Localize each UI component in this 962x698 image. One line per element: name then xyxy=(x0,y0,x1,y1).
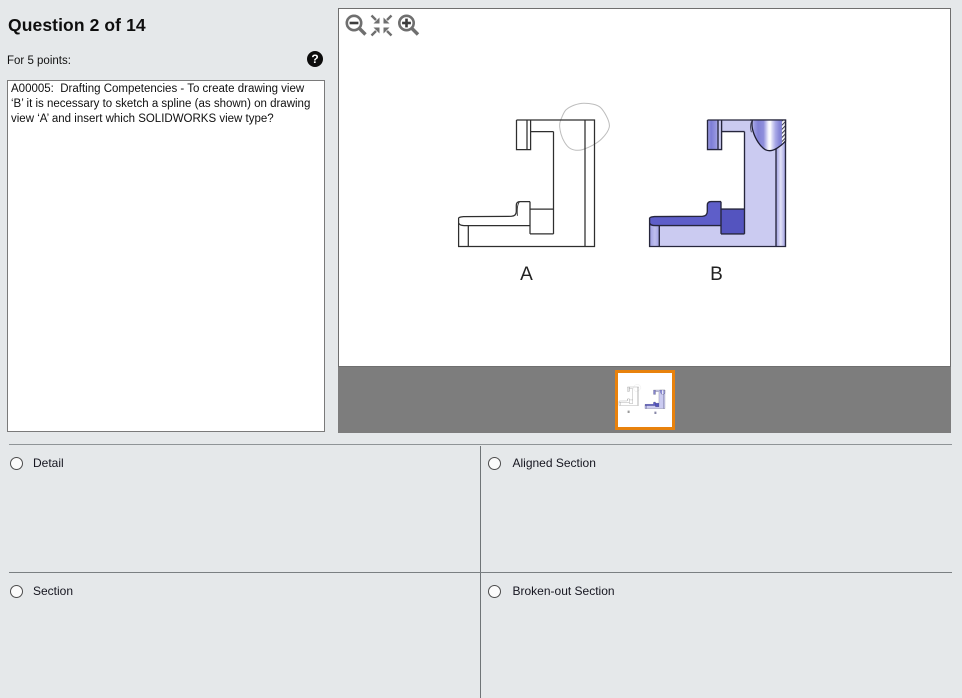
svg-text:B: B xyxy=(710,264,723,285)
svg-text:A: A xyxy=(520,264,533,285)
